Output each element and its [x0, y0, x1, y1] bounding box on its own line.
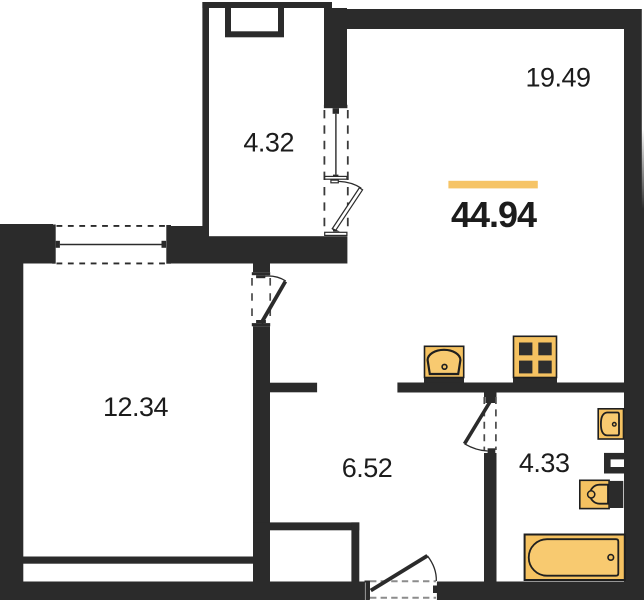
svg-text:4.33: 4.33 — [519, 448, 570, 478]
svg-text:6.52: 6.52 — [342, 453, 393, 483]
svg-text:12.34: 12.34 — [103, 392, 169, 422]
svg-text:44.94: 44.94 — [451, 194, 537, 235]
svg-text:19.49: 19.49 — [525, 63, 590, 93]
svg-text:4.32: 4.32 — [243, 128, 294, 158]
